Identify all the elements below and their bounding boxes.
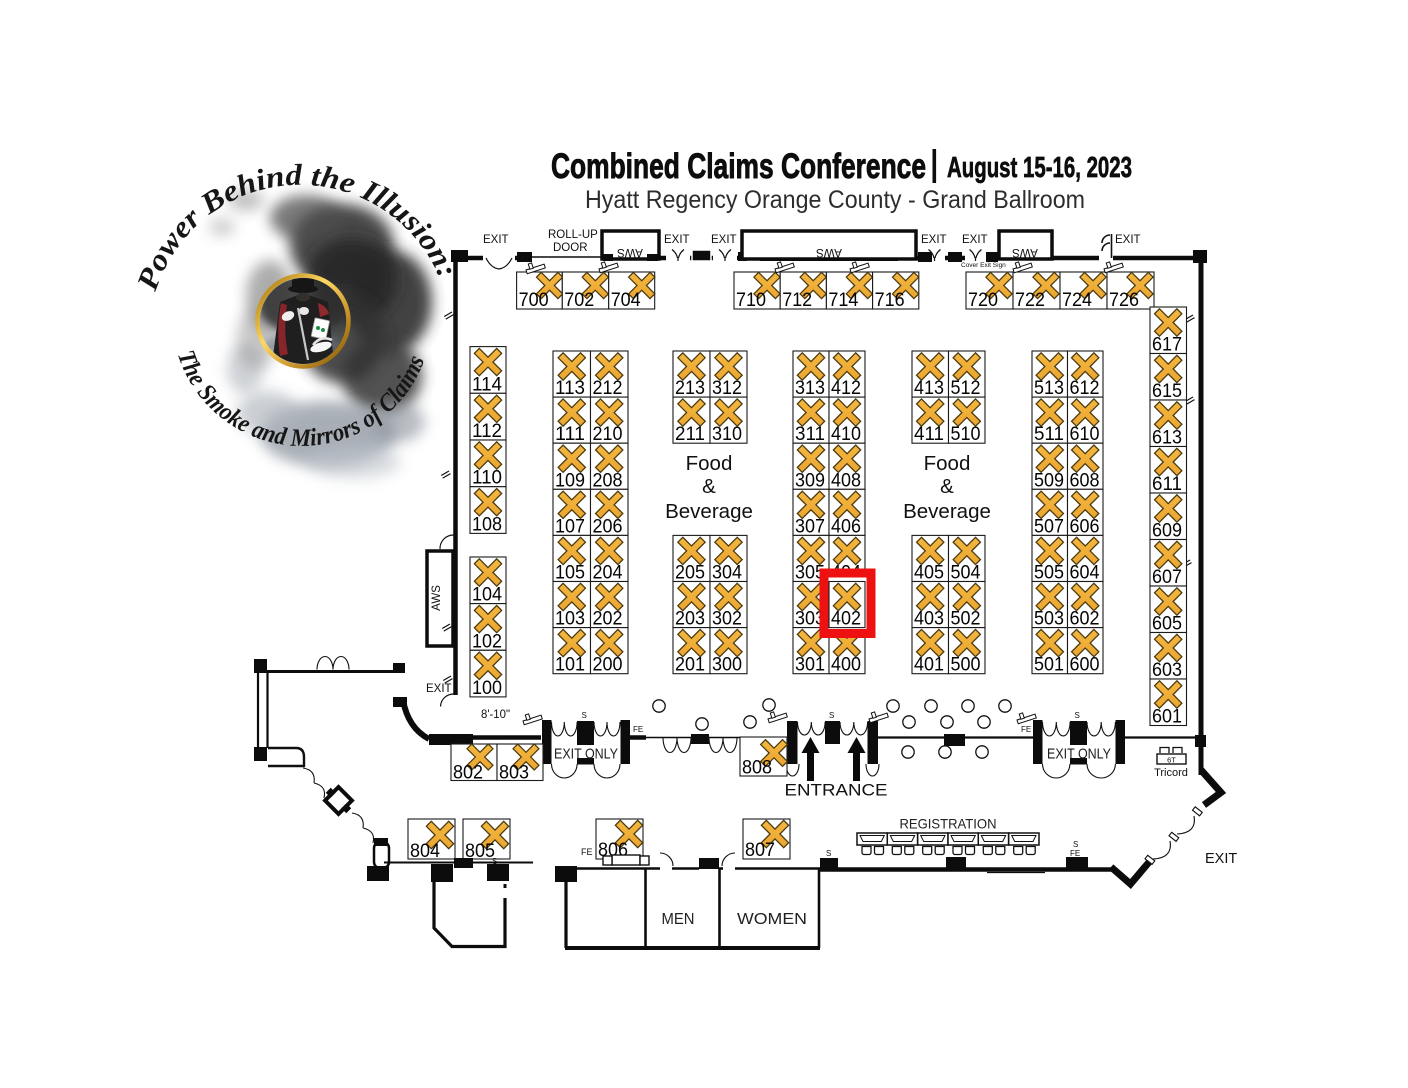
svg-text:Cover Exit Sign: Cover Exit Sign	[961, 262, 1006, 269]
svg-text:608: 608	[1070, 470, 1100, 491]
svg-text:406: 406	[831, 516, 861, 537]
svg-text:FE: FE	[1070, 849, 1080, 858]
svg-text:AWS: AWS	[1012, 246, 1038, 258]
svg-text:300: 300	[712, 655, 742, 676]
svg-text:702: 702	[564, 290, 594, 311]
svg-text:August 15-16, 2023: August 15-16, 2023	[947, 152, 1132, 184]
svg-text:S: S	[826, 849, 831, 858]
svg-text:507: 507	[1034, 516, 1064, 537]
svg-text:606: 606	[1070, 516, 1100, 537]
svg-text:403: 403	[914, 609, 944, 630]
svg-text:513: 513	[1034, 378, 1064, 399]
svg-text:EXIT: EXIT	[664, 234, 690, 246]
svg-text:Beverage: Beverage	[903, 500, 991, 523]
svg-text:611: 611	[1152, 474, 1182, 495]
svg-text:AWS: AWS	[431, 585, 443, 611]
svg-text:206: 206	[593, 516, 623, 537]
svg-text:Combined Claims Conference: Combined Claims Conference	[551, 146, 926, 186]
svg-text:400: 400	[831, 655, 861, 676]
svg-text:AWS: AWS	[617, 246, 643, 258]
svg-text:EXIT: EXIT	[426, 683, 452, 695]
svg-text:504: 504	[951, 563, 981, 584]
svg-text:510: 510	[951, 424, 981, 445]
svg-text:412: 412	[831, 378, 861, 399]
svg-text:FE: FE	[633, 725, 643, 734]
svg-text:&: &	[702, 475, 716, 498]
svg-text:704: 704	[611, 290, 641, 311]
svg-text:302: 302	[712, 609, 742, 630]
svg-text:402: 402	[831, 609, 861, 630]
svg-text:505: 505	[1034, 563, 1064, 584]
svg-text:203: 203	[675, 609, 705, 630]
svg-text:722: 722	[1015, 290, 1045, 311]
svg-text:726: 726	[1109, 290, 1139, 311]
svg-text:604: 604	[1070, 563, 1100, 584]
svg-text:AWS: AWS	[816, 246, 842, 258]
svg-text:605: 605	[1152, 614, 1182, 635]
svg-text:607: 607	[1152, 567, 1182, 588]
svg-text:714: 714	[828, 290, 858, 311]
svg-text:603: 603	[1152, 660, 1182, 681]
svg-text:REGISTRATION: REGISTRATION	[900, 816, 997, 832]
svg-text:&: &	[940, 475, 954, 498]
svg-text:110: 110	[472, 468, 502, 489]
svg-text:312: 312	[712, 378, 742, 399]
svg-text:311: 311	[795, 424, 825, 445]
svg-text:613: 613	[1152, 428, 1182, 449]
svg-text:210: 210	[593, 424, 623, 445]
svg-text:307: 307	[795, 516, 825, 537]
svg-text:204: 204	[593, 563, 623, 584]
svg-text:720: 720	[968, 290, 998, 311]
svg-text:602: 602	[1070, 609, 1100, 630]
svg-text:8'-10": 8'-10"	[481, 707, 510, 721]
svg-text:S: S	[1073, 840, 1078, 849]
svg-text:EXIT: EXIT	[711, 234, 737, 246]
svg-text:804: 804	[410, 841, 440, 862]
svg-text:803: 803	[499, 763, 529, 784]
svg-text:212: 212	[593, 378, 623, 399]
svg-text:EXIT: EXIT	[483, 234, 509, 246]
svg-text:EXIT: EXIT	[921, 234, 947, 246]
svg-text:609: 609	[1152, 521, 1182, 542]
svg-text:FE: FE	[1021, 725, 1031, 734]
svg-text:EXIT: EXIT	[962, 234, 988, 246]
svg-text:102: 102	[472, 631, 502, 652]
svg-text:808: 808	[742, 758, 772, 779]
svg-text:112: 112	[472, 421, 502, 442]
svg-text:100: 100	[472, 678, 502, 699]
svg-text:304: 304	[712, 563, 742, 584]
svg-text:202: 202	[593, 609, 623, 630]
svg-text:716: 716	[875, 290, 905, 311]
svg-text:502: 502	[951, 609, 981, 630]
svg-text:108: 108	[472, 514, 502, 535]
svg-text:Tricord: Tricord	[1154, 767, 1188, 779]
svg-text:405: 405	[914, 563, 944, 584]
svg-text:114: 114	[472, 374, 502, 395]
svg-text:Food: Food	[686, 452, 733, 475]
svg-text:610: 610	[1070, 424, 1100, 445]
svg-text:DOOR: DOOR	[553, 242, 588, 254]
svg-text:710: 710	[736, 290, 766, 311]
svg-text:205: 205	[675, 563, 705, 584]
svg-text:ROLL-UP: ROLL-UP	[548, 229, 598, 241]
svg-text:509: 509	[1034, 470, 1064, 491]
svg-text:601: 601	[1152, 707, 1182, 728]
svg-text:104: 104	[472, 585, 502, 606]
svg-text:807: 807	[745, 840, 775, 861]
svg-text:309: 309	[795, 470, 825, 491]
svg-text:408: 408	[831, 470, 861, 491]
svg-text:WOMEN: WOMEN	[737, 911, 807, 928]
svg-text:ENTRANCE: ENTRANCE	[785, 782, 888, 800]
svg-text:113: 113	[555, 378, 585, 399]
svg-text:615: 615	[1152, 381, 1182, 402]
svg-text:MEN: MEN	[662, 911, 695, 928]
svg-text:600: 600	[1070, 655, 1100, 676]
svg-text:101: 101	[555, 655, 585, 676]
svg-text:712: 712	[782, 290, 812, 311]
svg-text:EXIT ONLY: EXIT ONLY	[554, 747, 618, 763]
svg-text:503: 503	[1034, 609, 1064, 630]
svg-text:500: 500	[951, 655, 981, 676]
svg-text:EXIT: EXIT	[1205, 851, 1237, 867]
svg-text:6T: 6T	[1167, 756, 1176, 765]
svg-text:FE: FE	[581, 847, 593, 857]
svg-text:213: 213	[675, 378, 705, 399]
svg-text:S: S	[829, 711, 834, 720]
svg-text:511: 511	[1034, 424, 1064, 445]
svg-text:700: 700	[519, 290, 549, 311]
svg-text:208: 208	[593, 470, 623, 491]
svg-text:Food: Food	[924, 452, 971, 475]
svg-text:301: 301	[795, 655, 825, 676]
svg-text:Beverage: Beverage	[665, 500, 753, 523]
svg-text:EXIT: EXIT	[1115, 234, 1141, 246]
svg-text:411: 411	[914, 424, 944, 445]
svg-text:313: 313	[795, 378, 825, 399]
svg-text:S: S	[1075, 711, 1080, 720]
svg-text:111: 111	[555, 424, 585, 445]
svg-text:200: 200	[593, 655, 623, 676]
svg-text:S: S	[582, 711, 587, 720]
svg-text:612: 612	[1070, 378, 1100, 399]
svg-text:103: 103	[555, 609, 585, 630]
svg-text:EXIT ONLY: EXIT ONLY	[1047, 747, 1111, 763]
svg-text:201: 201	[675, 655, 705, 676]
svg-text:107: 107	[555, 516, 585, 537]
svg-text:211: 211	[675, 424, 705, 445]
svg-text:Hyatt Regency Orange County -: Hyatt Regency Orange County - Grand Ball…	[585, 186, 1085, 214]
svg-text:501: 501	[1034, 655, 1064, 676]
svg-text:512: 512	[951, 378, 981, 399]
svg-text:617: 617	[1152, 335, 1182, 356]
svg-text:401: 401	[914, 655, 944, 676]
svg-text:413: 413	[914, 378, 944, 399]
svg-text:802: 802	[453, 763, 483, 784]
svg-text:410: 410	[831, 424, 861, 445]
svg-text:105: 105	[555, 563, 585, 584]
svg-text:310: 310	[712, 424, 742, 445]
svg-text:724: 724	[1062, 290, 1092, 311]
svg-text:109: 109	[555, 470, 585, 491]
